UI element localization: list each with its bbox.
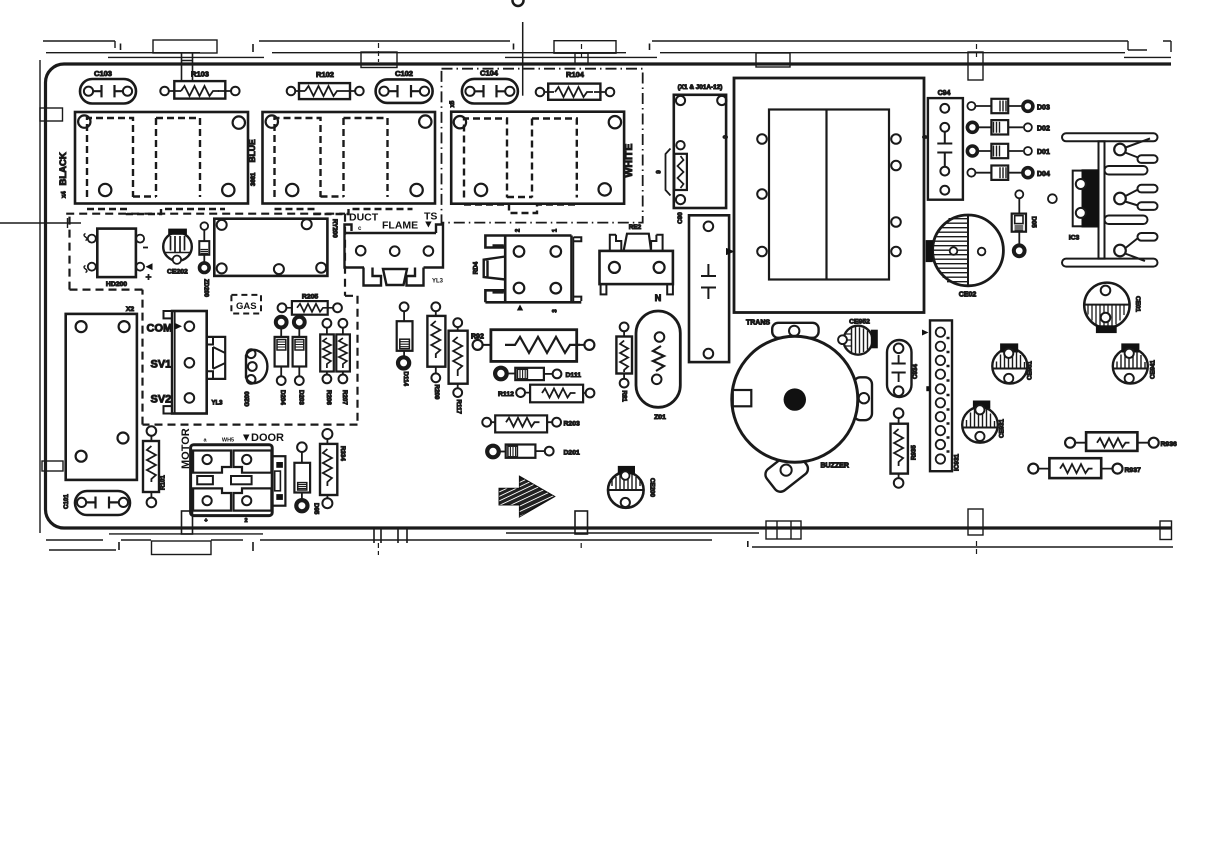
- svg-text:R102: R102: [316, 70, 334, 79]
- svg-text:2: 2: [516, 228, 522, 232]
- svg-text:CE200: CE200: [649, 478, 656, 497]
- svg-text:DUCT: DUCT: [349, 212, 379, 224]
- svg-text:CE202: CE202: [167, 269, 188, 276]
- svg-text:(X1 & J01A-12): (X1 & J01A-12): [678, 84, 723, 91]
- svg-text:CE02: CE02: [959, 292, 977, 299]
- svg-text:D111: D111: [566, 372, 582, 379]
- svg-text:CE952: CE952: [849, 319, 870, 326]
- svg-text:IC3: IC3: [1069, 235, 1080, 242]
- svg-text:CE931: CE931: [999, 419, 1006, 438]
- svg-text:D01: D01: [1037, 149, 1050, 156]
- svg-text:x4: x4: [62, 191, 68, 198]
- svg-text:ZD200: ZD200: [203, 279, 209, 298]
- svg-text:D95: D95: [313, 503, 320, 515]
- svg-text:D114: D114: [402, 372, 409, 387]
- svg-text:GAS: GAS: [236, 301, 257, 312]
- svg-text:X2: X2: [126, 306, 135, 313]
- svg-text:C94: C94: [938, 90, 951, 97]
- svg-text:TS: TS: [424, 211, 437, 223]
- svg-text:R209: R209: [433, 385, 440, 400]
- svg-text:CE941: CE941: [1150, 360, 1157, 379]
- svg-text:R205: R205: [302, 294, 318, 301]
- svg-text:R112: R112: [498, 391, 514, 398]
- svg-text:R334: R334: [339, 446, 346, 461]
- svg-text:3661: 3661: [251, 172, 257, 186]
- svg-text:2: 2: [244, 518, 247, 524]
- svg-text:HD200: HD200: [106, 281, 127, 288]
- svg-text:G200: G200: [244, 391, 251, 407]
- svg-text:C934: C934: [912, 364, 919, 379]
- svg-text:RE2: RE2: [629, 224, 642, 231]
- svg-text:FLAME: FLAME: [382, 220, 418, 232]
- svg-text:R936: R936: [1161, 441, 1177, 448]
- svg-text:R207: R207: [341, 390, 348, 405]
- svg-text:9: 9: [657, 170, 663, 174]
- svg-text:c: c: [358, 226, 362, 232]
- svg-text:D05: D05: [1030, 216, 1037, 228]
- svg-text:RY200: RY200: [331, 219, 338, 238]
- svg-text:R117: R117: [455, 400, 462, 415]
- svg-text:C101: C101: [63, 494, 70, 509]
- svg-text:N: N: [655, 293, 662, 303]
- svg-text:R937: R937: [1125, 467, 1141, 474]
- svg-text:R103: R103: [191, 70, 209, 79]
- svg-text:SV1: SV1: [151, 359, 172, 371]
- svg-text:Z01: Z01: [654, 414, 666, 421]
- svg-text:R203: R203: [564, 421, 580, 428]
- svg-text:COM: COM: [147, 323, 173, 335]
- svg-text:YL3: YL3: [211, 401, 223, 407]
- svg-text:C90: C90: [677, 212, 684, 224]
- svg-text:R101: R101: [160, 475, 167, 490]
- svg-text:1: 1: [553, 228, 559, 232]
- svg-text:x5: x5: [450, 100, 456, 107]
- svg-text:D03: D03: [1037, 105, 1050, 112]
- svg-text:D201: D201: [564, 450, 580, 457]
- svg-text:BLUE: BLUE: [247, 139, 257, 162]
- svg-text:C103: C103: [94, 69, 112, 78]
- svg-text:R935: R935: [911, 445, 918, 460]
- svg-text:WH5: WH5: [222, 438, 234, 444]
- svg-text:RD4: RD4: [473, 261, 480, 274]
- svg-text:+: +: [204, 518, 207, 524]
- svg-text:C104: C104: [480, 69, 499, 78]
- svg-text:CE01: CE01: [1134, 296, 1141, 312]
- svg-text:R92: R92: [471, 334, 484, 341]
- svg-text:D204: D204: [279, 390, 286, 405]
- svg-text:3: 3: [553, 309, 559, 313]
- svg-text:YL3: YL3: [432, 279, 444, 285]
- svg-text:C102: C102: [395, 69, 413, 78]
- svg-text:BUZZER: BUZZER: [821, 463, 849, 470]
- svg-text:WHITE: WHITE: [623, 144, 635, 178]
- svg-text:DOOR: DOOR: [251, 432, 284, 444]
- svg-text:D203: D203: [297, 390, 304, 405]
- svg-text:D04: D04: [1037, 171, 1050, 178]
- svg-text:CE951: CE951: [1027, 361, 1034, 380]
- svg-text:TRANS: TRANS: [746, 320, 770, 327]
- svg-text:R104: R104: [566, 70, 585, 79]
- svg-text:IC931: IC931: [954, 454, 961, 471]
- svg-text:R81: R81: [621, 391, 628, 403]
- svg-text:BLACK: BLACK: [58, 152, 69, 185]
- svg-text:a: a: [203, 438, 207, 444]
- svg-text:R206: R206: [325, 390, 332, 405]
- svg-text:D02: D02: [1037, 126, 1050, 133]
- svg-text:SV2: SV2: [151, 394, 172, 406]
